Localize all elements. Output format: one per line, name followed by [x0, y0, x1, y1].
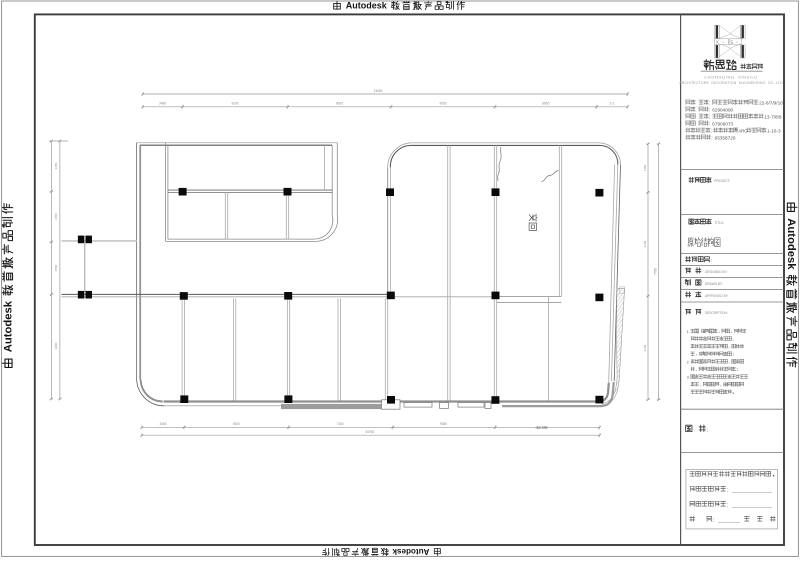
svg-text:9200: 9200 — [231, 102, 238, 106]
svg-text:2: 2 — [687, 360, 689, 364]
svg-text:1-10-3: 1-10-3 — [767, 129, 781, 134]
svg-text:34760: 34760 — [365, 430, 375, 434]
svg-text:CHONGQING XINSILU: CHONGQING XINSILU — [704, 75, 758, 80]
svg-text:1450: 1450 — [643, 164, 647, 171]
svg-text:DESCRIPTION:: DESCRIPTION: — [705, 311, 728, 315]
svg-text:13450: 13450 — [374, 89, 383, 93]
svg-text:9050: 9050 — [440, 422, 447, 426]
svg-text:8850: 8850 — [542, 102, 549, 106]
svg-text:9200: 9200 — [233, 422, 240, 426]
svg-text:22-6/7/9/10: 22-6/7/9/10 — [759, 101, 783, 106]
svg-text:1450: 1450 — [54, 162, 58, 169]
svg-text::: : — [709, 122, 710, 128]
svg-text:ARC: ARC — [738, 129, 747, 134]
svg-text:1: 1 — [687, 330, 689, 334]
svg-text:3000: 3000 — [54, 342, 58, 349]
svg-text:3460: 3460 — [159, 102, 166, 106]
svg-text:PROJECT:: PROJECT: — [714, 179, 730, 183]
svg-text::: : — [709, 115, 710, 121]
svg-text:3100: 3100 — [643, 344, 647, 351]
svg-text:APPROVED BY:: APPROVED BY: — [705, 294, 729, 298]
svg-text:65358726: 65358726 — [715, 136, 736, 141]
svg-text:ARCHITECTURE DECORATION ENGI: ARCHITECTURE DECORATION ENGINEERING CO.,… — [679, 81, 783, 85]
svg-text::: : — [709, 108, 710, 114]
svg-text:3460: 3460 — [159, 422, 166, 426]
svg-text:67906073: 67906073 — [712, 122, 733, 127]
svg-text::: : — [711, 129, 712, 135]
svg-text:9050: 9050 — [336, 102, 343, 106]
svg-text:3100: 3100 — [643, 240, 647, 247]
svg-text:1500: 1500 — [54, 264, 58, 271]
svg-text:13-7/8/9: 13-7/8/9 — [764, 115, 782, 120]
svg-text:TITLE:: TITLE: — [714, 221, 724, 225]
svg-text:62984090: 62984090 — [712, 108, 733, 113]
svg-text:7150: 7150 — [336, 422, 343, 426]
svg-text:42.88: 42.88 — [535, 425, 547, 431]
svg-text:2-2: 2-2 — [609, 102, 614, 106]
svg-text::: : — [711, 136, 712, 142]
svg-text:3: 3 — [687, 376, 689, 380]
svg-text::: : — [711, 258, 712, 264]
svg-text:DESIGNED BY:: DESIGNED BY: — [705, 270, 728, 274]
svg-text:DRAWN BY:: DRAWN BY: — [705, 282, 723, 286]
svg-text::: : — [709, 101, 710, 107]
svg-text:7780: 7780 — [654, 268, 658, 275]
svg-text:1450: 1450 — [54, 213, 58, 220]
svg-text:9050: 9050 — [439, 102, 446, 106]
